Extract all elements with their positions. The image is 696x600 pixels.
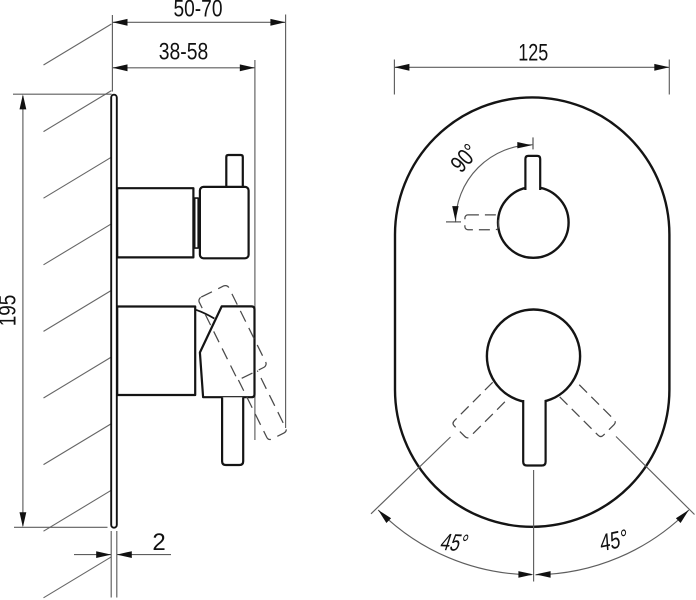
svg-text:50-70: 50-70: [174, 0, 223, 23]
svg-text:38-58: 38-58: [159, 39, 209, 66]
svg-text:195: 195: [0, 295, 22, 327]
svg-text:125: 125: [518, 40, 548, 67]
svg-text:45°: 45°: [599, 525, 628, 558]
svg-text:2: 2: [152, 529, 165, 556]
